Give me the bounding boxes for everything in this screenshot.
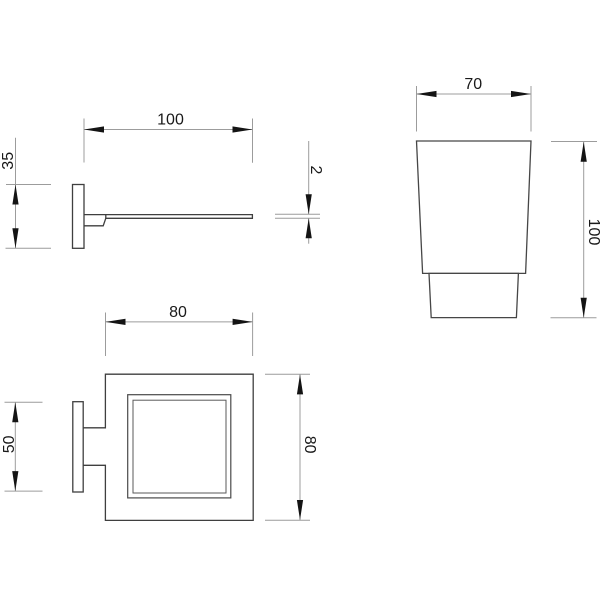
svg-text:100: 100 bbox=[585, 219, 600, 246]
svg-text:80: 80 bbox=[169, 304, 187, 321]
svg-text:70: 70 bbox=[464, 76, 482, 93]
svg-text:35: 35 bbox=[0, 152, 17, 170]
svg-text:100: 100 bbox=[157, 112, 184, 129]
svg-text:80: 80 bbox=[301, 436, 318, 454]
svg-text:2: 2 bbox=[307, 166, 324, 175]
svg-text:50: 50 bbox=[1, 435, 18, 453]
